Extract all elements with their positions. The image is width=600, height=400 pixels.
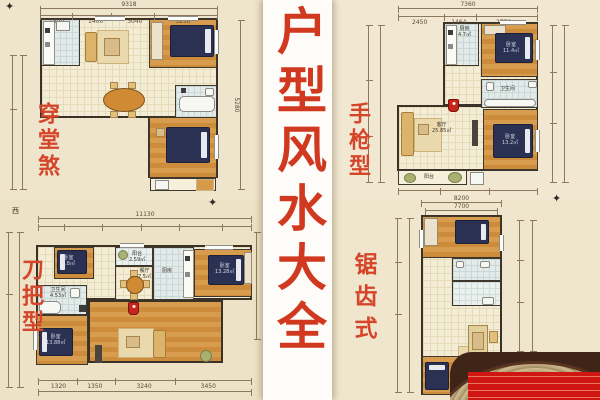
fridge-icon xyxy=(56,21,70,31)
room-label: 卫生间 4.53㎡ xyxy=(50,287,66,299)
wardrobe-icon xyxy=(424,218,438,246)
room-label: 卫生间 xyxy=(500,86,515,92)
dimension-line xyxy=(564,25,565,183)
window-icon xyxy=(500,20,526,25)
room-label: 卧室 13.88㎡ xyxy=(46,334,65,346)
compass-rose-icon: ✦ xyxy=(552,192,561,205)
room-area: 7.8㎡ xyxy=(62,261,75,267)
tv-icon xyxy=(472,120,478,146)
window-icon xyxy=(120,243,144,248)
bathtub-icon xyxy=(179,96,215,112)
toilet-icon xyxy=(480,261,490,268)
room-name: 卫生间 xyxy=(500,86,515,92)
sofa-icon xyxy=(401,112,414,156)
bed-icon xyxy=(170,25,214,57)
dimension-line xyxy=(519,220,520,352)
room-area: 25.85㎡ xyxy=(432,128,451,134)
dimension-label: 1320 xyxy=(51,383,66,390)
window-icon xyxy=(214,135,219,159)
dimension-line: 2450 1464 2750 xyxy=(398,16,538,17)
chair-icon xyxy=(130,293,138,300)
room-area: 2.59㎡ xyxy=(129,257,145,263)
wardrobe-icon xyxy=(244,252,252,284)
nightstand-icon xyxy=(156,128,165,137)
dimension-line xyxy=(8,232,9,388)
window-icon xyxy=(205,245,233,250)
chair-icon xyxy=(110,111,118,118)
plant-icon xyxy=(118,250,128,260)
toilet-icon xyxy=(486,82,494,91)
fengshui-poster: ✦ ✦ ✦ ✦ 西 穿堂煞 9318 1800 1400 3040 5250 5… xyxy=(0,0,600,400)
window-icon xyxy=(419,230,424,248)
dimension-label: 7700 xyxy=(454,203,469,210)
room-area: 7.5㎡ xyxy=(138,274,151,280)
dimension-line xyxy=(256,232,257,340)
room-area: 4.7㎡ xyxy=(458,32,471,38)
stove-icon xyxy=(45,28,50,33)
room-name: 阳台 xyxy=(424,174,434,180)
plan-label-shouqiangxing: 手枪型 xyxy=(341,102,373,180)
toilet-icon xyxy=(70,288,80,298)
pillow-icon xyxy=(205,29,211,53)
sink-icon xyxy=(448,44,453,49)
dimension-line: 1320 1350 3240 3450 xyxy=(38,380,252,381)
dimension-line xyxy=(397,218,398,393)
room-area: 13.2㎡ xyxy=(502,140,518,146)
ac-unit-icon xyxy=(470,172,484,185)
room-area: 4.53㎡ xyxy=(50,293,66,299)
dimension-label: 9318 xyxy=(121,1,136,8)
direction-west-label: 西 xyxy=(12,206,19,216)
dimension-line: 9318 xyxy=(40,8,218,9)
room-label: 阳台 xyxy=(424,174,434,180)
dimension-line xyxy=(12,55,13,190)
sink-icon xyxy=(456,261,464,268)
pillow-icon xyxy=(481,224,486,240)
room-label: 阳台 2.59㎡ xyxy=(129,251,145,263)
chair-icon xyxy=(128,111,136,118)
pillow-icon xyxy=(525,129,530,153)
dimension-line: 11130 xyxy=(38,218,252,219)
room-label: 卧室 7.8㎡ xyxy=(62,255,75,267)
coffee-table-icon xyxy=(418,124,429,135)
plan-label-juchishi: 锯齿式 xyxy=(346,252,380,348)
dimension-line: 7700 xyxy=(425,210,498,211)
dimension-line xyxy=(380,25,381,183)
window-icon xyxy=(214,30,219,54)
sink-icon xyxy=(185,272,190,277)
dining-table-icon xyxy=(103,88,145,112)
dimension-label: 11130 xyxy=(135,211,154,218)
dimension-line xyxy=(532,220,533,352)
washer-icon xyxy=(181,88,186,93)
room-area: 13.88㎡ xyxy=(46,340,65,346)
room-label: 卧室 11.4㎡ xyxy=(503,42,519,54)
sink-icon xyxy=(528,81,537,88)
plan-label-chuantangsha: 穿堂煞 xyxy=(30,102,62,180)
dimension-label: 3450 xyxy=(201,383,216,390)
luopan-compass-overlay xyxy=(450,352,600,400)
stove-icon xyxy=(185,256,190,261)
dimension-label: 3040 xyxy=(127,18,142,25)
sofa-icon xyxy=(153,330,166,358)
room-label: 餐厅 7.5㎡ xyxy=(138,268,151,280)
compass-rose-icon: ✦ xyxy=(208,196,217,209)
entry-door-marker xyxy=(128,302,139,315)
room-label: 厨房 xyxy=(162,268,172,274)
coffee-table-icon xyxy=(126,336,140,348)
pillow-icon xyxy=(429,365,445,370)
dimension-line xyxy=(409,218,410,393)
poster-title: 户型风水大全 xyxy=(263,5,332,359)
dimension-line xyxy=(398,190,538,191)
desk-top-icon xyxy=(472,332,484,350)
dimension-line: 5280 xyxy=(240,20,241,190)
wardrobe-icon xyxy=(151,22,163,60)
compass-rose-icon: ✦ xyxy=(5,0,14,13)
room-label: 卧室 13.28㎡ xyxy=(215,263,234,275)
window-icon xyxy=(499,235,504,251)
dimension-line: 7360 xyxy=(398,8,538,9)
chair-icon xyxy=(143,280,150,288)
room-name: 厨房 xyxy=(162,268,172,274)
room-label: 厨房 4.7㎡ xyxy=(458,26,471,38)
balcony-box-icon xyxy=(155,180,169,190)
dimension-line xyxy=(22,55,23,190)
sink-icon xyxy=(45,42,50,47)
dimension-label: 1350 xyxy=(87,383,102,390)
room-label: 卧室 13.2㎡ xyxy=(502,134,518,146)
red-text-banner xyxy=(468,372,600,400)
tv-icon xyxy=(95,345,102,363)
pillow-icon xyxy=(236,259,241,281)
bed-icon xyxy=(166,127,210,163)
bed-icon xyxy=(455,220,489,244)
window-icon xyxy=(535,130,540,152)
plant-icon xyxy=(200,350,212,362)
room-area: 13.28㎡ xyxy=(215,269,234,275)
sofa-icon xyxy=(85,32,97,62)
plant-icon xyxy=(448,172,462,183)
plant-icon xyxy=(404,173,416,183)
pillow-icon xyxy=(525,37,530,59)
mat-icon xyxy=(196,179,214,191)
dimension-line xyxy=(38,391,252,392)
room-area: 11.4㎡ xyxy=(503,48,519,54)
bathtub-icon xyxy=(482,297,494,305)
bed-icon xyxy=(425,362,449,390)
dimension-label: 5280 xyxy=(233,97,240,112)
coffee-table-icon xyxy=(104,38,120,56)
pillow-icon xyxy=(201,132,207,158)
window-icon xyxy=(95,16,125,21)
dimension-line xyxy=(38,226,252,227)
window-icon xyxy=(535,40,540,60)
room-label: 客厅 25.85㎡ xyxy=(432,122,451,134)
window-icon xyxy=(168,16,198,21)
washer-icon xyxy=(79,305,86,312)
chair-icon xyxy=(489,331,498,343)
center-title-strip: 户型风水大全 xyxy=(263,0,332,400)
plan-label-daobaxing: 刀把型 xyxy=(14,258,46,336)
stove-icon xyxy=(448,30,453,35)
toilet-icon xyxy=(205,88,214,96)
dimension-label: 7360 xyxy=(460,1,475,8)
entry-door-marker xyxy=(448,99,459,112)
dimension-label: 8200 xyxy=(454,195,469,202)
dimension-label: 3240 xyxy=(136,383,151,390)
dimension-line xyxy=(552,25,553,183)
bathtub-icon xyxy=(484,99,536,107)
dimension-label: 2450 xyxy=(412,19,427,26)
